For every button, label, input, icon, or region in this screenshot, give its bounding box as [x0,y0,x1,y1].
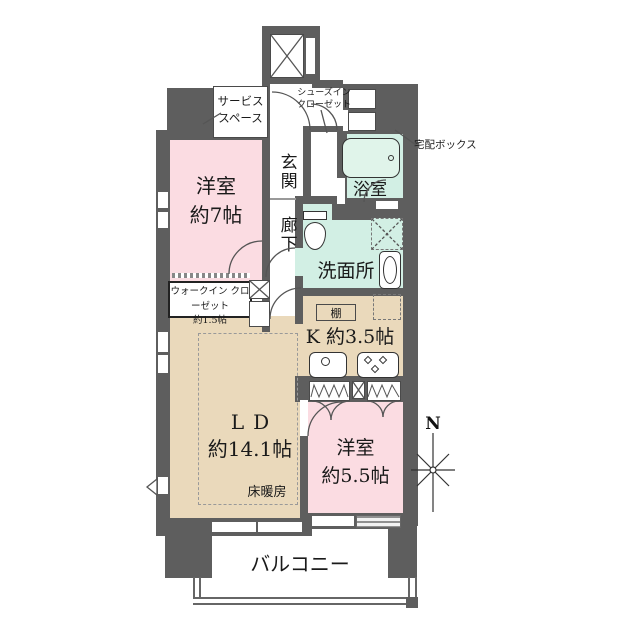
window-ld-b [158,355,168,373]
window-ld-a [158,332,168,352]
balcony-rail-bottom-b [193,603,418,605]
kitchen-faucet-icon [321,357,330,366]
balcony-rail-right-b [415,577,417,599]
label-washroom: 洗面所 [298,258,394,286]
elevator-door [306,38,315,74]
label-shelf: 棚 [316,306,356,322]
window-bedroom7-a [158,192,168,208]
bathtub-drain-icon [388,155,394,161]
label-bedroom-5: 洋室 約5.5帖 [308,435,403,490]
compass-n-label: N [425,414,441,434]
duct-box [249,280,270,299]
balcony-corner-post [406,597,418,608]
label-walk-in-closet: ウォークイン クローゼット 約1.5帖 [169,285,251,329]
label-delivery-box: 宅配ボックス [414,138,488,153]
wall-balcony-block-left [165,524,212,578]
balcony-rail-right-a [408,577,410,599]
label-bedroom-7: 洋室 約7帖 [170,172,262,230]
vent-slot [158,477,168,494]
louver-window [356,515,401,528]
window-bedroom5-south [312,516,354,526]
window-ld-south-a [212,522,256,532]
balcony-rail-bottom-a [193,597,418,599]
wall-balcony-block-right [388,524,417,578]
toilet-tank-icon [303,211,327,220]
room-shoes-closet [311,128,337,196]
label-entrance: 玄関 [274,143,299,201]
window-ld-south-b [258,522,302,532]
balcony-rail-left-a [193,577,195,599]
bedroom7-closet-fold-door [172,273,250,278]
closet-duct-box [352,381,365,399]
label-ld-size: 約14.1帖 [180,435,320,464]
label-floor-heating: 床暖房 [238,484,296,503]
stove-icon [357,352,399,378]
balcony-rail-left-b [199,577,201,599]
label-shoes-closet: シューズイン クローゼット [292,87,356,111]
fridge-space [373,294,401,320]
label-balcony: バルコニー [230,550,370,579]
wall-right [403,134,418,526]
elevator-cab [270,34,304,78]
closet-bedroom5-left [309,381,350,401]
label-service-space: サービス スペース [213,93,268,126]
label-ld-name: LD [180,408,320,437]
closet-bedroom5-right [367,381,401,401]
label-bathroom: 浴室 [344,178,396,203]
label-kitchen: K 約3.5帖 [298,324,402,352]
window-bedroom7-b [158,212,168,228]
delivery-box-unit-2 [348,112,376,131]
window-slot [343,110,348,131]
floor-plan: サービス スペース シューズイン クローゼット 玄関 宅配ボックス 浴室 廊下 … [0,0,640,640]
wall-block-top-left [167,88,213,136]
storage-box [249,301,270,327]
pipe-space [371,218,403,250]
wall-sic-left [303,126,311,198]
label-corridor: 廊下 [274,204,299,266]
